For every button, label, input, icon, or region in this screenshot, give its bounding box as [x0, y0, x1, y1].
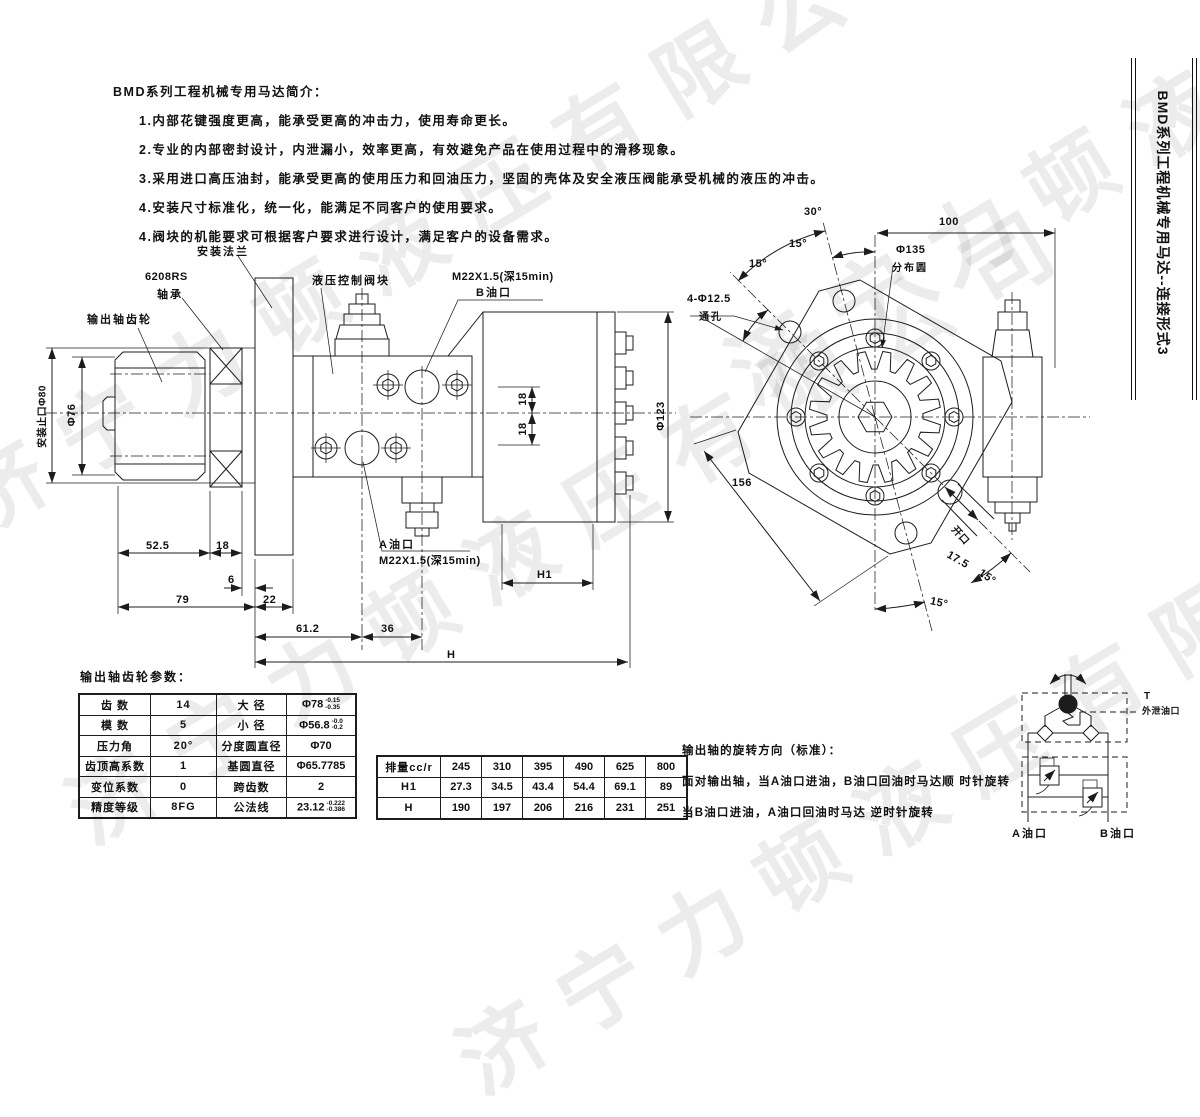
- dim-100: 100: [939, 216, 959, 228]
- table-cell: 206: [523, 798, 564, 819]
- table-cell: 齿 数: [79, 694, 151, 715]
- hydraulic-schematic: [1022, 674, 1140, 822]
- drawing-sheet: { "intro": { "title": "BMD系列工程机械专用马达简介："…: [0, 0, 1200, 854]
- t-port-label: T: [1144, 691, 1151, 702]
- table-cell: 20°: [151, 736, 217, 757]
- table-row: 压力角 20° 分度圆直径 Φ70: [79, 736, 356, 757]
- table-cell: 变位系数: [79, 777, 151, 798]
- table-cell: Φ65.7785: [287, 756, 357, 777]
- rotation-note-line: 面对输出轴，当A油口进油，B油口回油时马达顺 时针旋转: [682, 773, 1010, 789]
- intro-block: BMD系列工程机械专用马达简介： 1.内部花键强度更高，能承受更高的冲击力，使用…: [113, 78, 824, 252]
- dim-H1: H1: [537, 569, 552, 581]
- table-cell: 齿顶高系数: [79, 756, 151, 777]
- dim-52-5: 52.5: [146, 540, 169, 552]
- holes-label: 通孔: [699, 308, 723, 323]
- sidebar-rule: [1131, 58, 1132, 400]
- table-cell: 27.3: [441, 777, 482, 798]
- table-row: 齿 数 14 大 径 Φ78-0.15-0.35: [79, 694, 356, 715]
- dim-61-2: 61.2: [296, 623, 319, 635]
- intro-item: 2.专业的内部密封设计，内泄漏小，效率更高，有效避免产品在使用过程中的滑移现象。: [139, 136, 824, 165]
- sidebar-rule: [1196, 58, 1197, 400]
- table-cell: 231: [605, 798, 646, 819]
- b-port-thread-label: M22X1.5(深15min): [452, 268, 554, 284]
- table-cell: 89: [646, 777, 688, 798]
- table-cell: 23.12-0.222-0.386: [287, 797, 357, 818]
- bolt-circle-dia-label: Φ135: [896, 244, 925, 256]
- table-cell: 8FG: [151, 797, 217, 818]
- table-cell: 69.1: [605, 777, 646, 798]
- bearing-model-label: 6208RS: [145, 271, 188, 283]
- table-cell: 排量cc/r: [377, 756, 441, 777]
- table-cell: H: [377, 798, 441, 819]
- table-cell: 1: [151, 756, 217, 777]
- gear-table-title: 输出轴齿轮参数：: [80, 668, 192, 685]
- table-cell: Φ78-0.15-0.35: [287, 694, 357, 715]
- angle-30: 30°: [804, 206, 822, 218]
- intro-item: 4.安装尺寸标准化，统一化，能满足不同客户的使用要求。: [139, 194, 824, 223]
- table-cell: 小 径: [217, 715, 287, 736]
- dim-36: 36: [381, 623, 394, 635]
- spigot-dim-label: 安装止口Φ80: [34, 372, 49, 462]
- table-row: 精度等级 8FG 公法线 23.12-0.222-0.386: [79, 797, 356, 818]
- b-port-schematic-label: B油口: [1100, 825, 1136, 841]
- dim-d76: Φ76: [66, 395, 78, 435]
- table-row: 模 数 5 小 径 Φ56.8-0.0-0.2: [79, 715, 356, 736]
- rotation-note-title: 输出轴的旋转方向（标准）：: [682, 742, 1010, 758]
- dim-22: 22: [263, 594, 276, 606]
- angle-15-a: 15°: [789, 238, 807, 250]
- table-cell: 基圆直径: [217, 756, 287, 777]
- table-cell: 490: [564, 756, 605, 777]
- bolt-circle-label: 分布圆: [892, 259, 928, 274]
- dim-H: H: [447, 649, 455, 661]
- table-cell: 800: [646, 756, 688, 777]
- rotation-note: 输出轴的旋转方向（标准）： 面对输出轴，当A油口进油，B油口回油时马达顺 时针旋…: [682, 742, 1010, 835]
- table-cell: 跨齿数: [217, 777, 287, 798]
- table-cell: 大 径: [217, 694, 287, 715]
- sidebar-rule: [1135, 58, 1136, 400]
- table-cell: 5: [151, 715, 217, 736]
- a-port-schematic-label: A油口: [1012, 825, 1048, 841]
- dim-18-upper: 18: [517, 388, 529, 410]
- intro-item: 1.内部花键强度更高，能承受更高的冲击力，使用寿命更长。: [139, 107, 824, 136]
- table-row: H 190 197 206 216 231 251: [377, 798, 687, 819]
- table-cell: Φ56.8-0.0-0.2: [287, 715, 357, 736]
- flange-label: 安装法兰: [197, 243, 249, 259]
- dim-79: 79: [176, 594, 189, 606]
- valve-block-label: 液压控制阀块: [312, 272, 390, 288]
- table-row: H1 27.3 34.5 43.4 54.4 69.1 89: [377, 777, 687, 798]
- table-cell: 251: [646, 798, 688, 819]
- table-cell: 2: [287, 777, 357, 798]
- table-cell: 14: [151, 694, 217, 715]
- table-cell: 310: [482, 756, 523, 777]
- table-row: 齿顶高系数 1 基圆直径 Φ65.7785: [79, 756, 356, 777]
- table-cell: Φ70: [287, 736, 357, 757]
- front-view: [321, 222, 1090, 631]
- bearing-label: 轴承: [157, 286, 183, 302]
- table-cell: 216: [564, 798, 605, 819]
- gear-parameter-table: 齿 数 14 大 径 Φ78-0.15-0.35 模 数 5 小 径 Φ56.8…: [78, 693, 357, 819]
- table-cell: 197: [482, 798, 523, 819]
- output-gear-label: 输出轴齿轮: [87, 311, 152, 327]
- table-cell: 34.5: [482, 777, 523, 798]
- b-port-label: B油口: [476, 284, 512, 300]
- drain-port-label: 外泄油口: [1142, 704, 1180, 717]
- table-cell: 54.4: [564, 777, 605, 798]
- a-port-label: A油口: [379, 536, 415, 552]
- dim-156: 156: [732, 477, 752, 489]
- table-cell: 43.4: [523, 777, 564, 798]
- table-cell: 0: [151, 777, 217, 798]
- table-cell: 公法线: [217, 797, 287, 818]
- sidebar-rule: [1192, 58, 1193, 400]
- holes-dia-label: 4-Φ12.5: [687, 293, 731, 305]
- table-cell: 245: [441, 756, 482, 777]
- table-row: 变位系数 0 跨齿数 2: [79, 777, 356, 798]
- table-cell: 模 数: [79, 715, 151, 736]
- angle-15-b: 15°: [749, 258, 767, 270]
- sheet-title-vertical: BMD系列工程机械专用马达--连接形式3: [1153, 63, 1173, 383]
- displacement-table: 排量cc/r 245 310 395 490 625 800 H1 27.3 3…: [376, 755, 688, 820]
- table-cell: 625: [605, 756, 646, 777]
- dim-18-lower: 18: [517, 418, 529, 440]
- dim-18: 18: [216, 540, 229, 552]
- a-port-thread-label: M22X1.5(深15min): [379, 552, 481, 568]
- table-cell: H1: [377, 777, 441, 798]
- intro-title: BMD系列工程机械专用马达简介：: [113, 78, 824, 107]
- intro-item: 3.采用进口高压油封，能承受更高的使用压力和回油压力，坚固的壳体及安全液压阀能承…: [139, 165, 824, 194]
- table-cell: 压力角: [79, 736, 151, 757]
- table-cell: 395: [523, 756, 564, 777]
- dim-6: 6: [228, 574, 235, 586]
- rotation-note-line: 当B油口进油，A油口回油时马达 逆时针旋转: [682, 804, 1010, 820]
- table-cell: 分度圆直径: [217, 736, 287, 757]
- dim-d123: Φ123: [655, 394, 667, 438]
- table-cell: 190: [441, 798, 482, 819]
- table-row: 排量cc/r 245 310 395 490 625 800: [377, 756, 687, 777]
- table-cell: 精度等级: [79, 797, 151, 818]
